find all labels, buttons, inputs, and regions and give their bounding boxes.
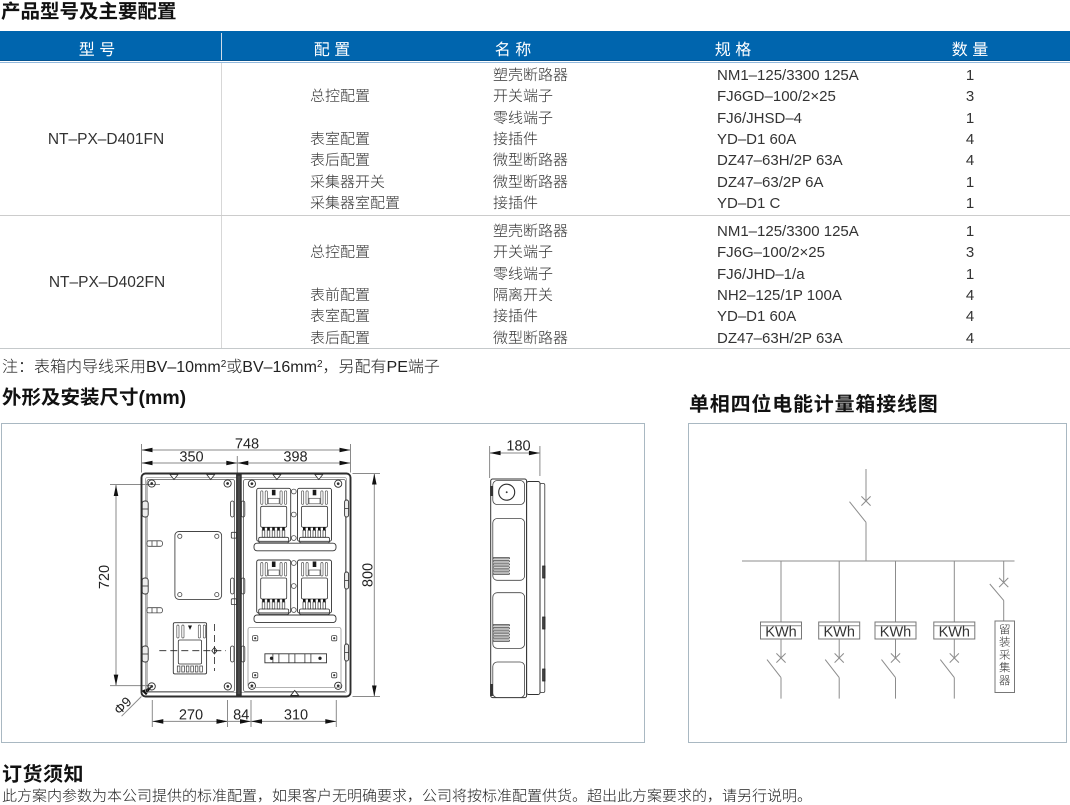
svg-text:KWh: KWh [823, 625, 854, 641]
svg-text:KWh: KWh [939, 625, 970, 641]
svg-text:器: 器 [999, 672, 1011, 688]
svg-text:KWh: KWh [765, 625, 796, 641]
svg-text:KWh: KWh [880, 625, 911, 641]
